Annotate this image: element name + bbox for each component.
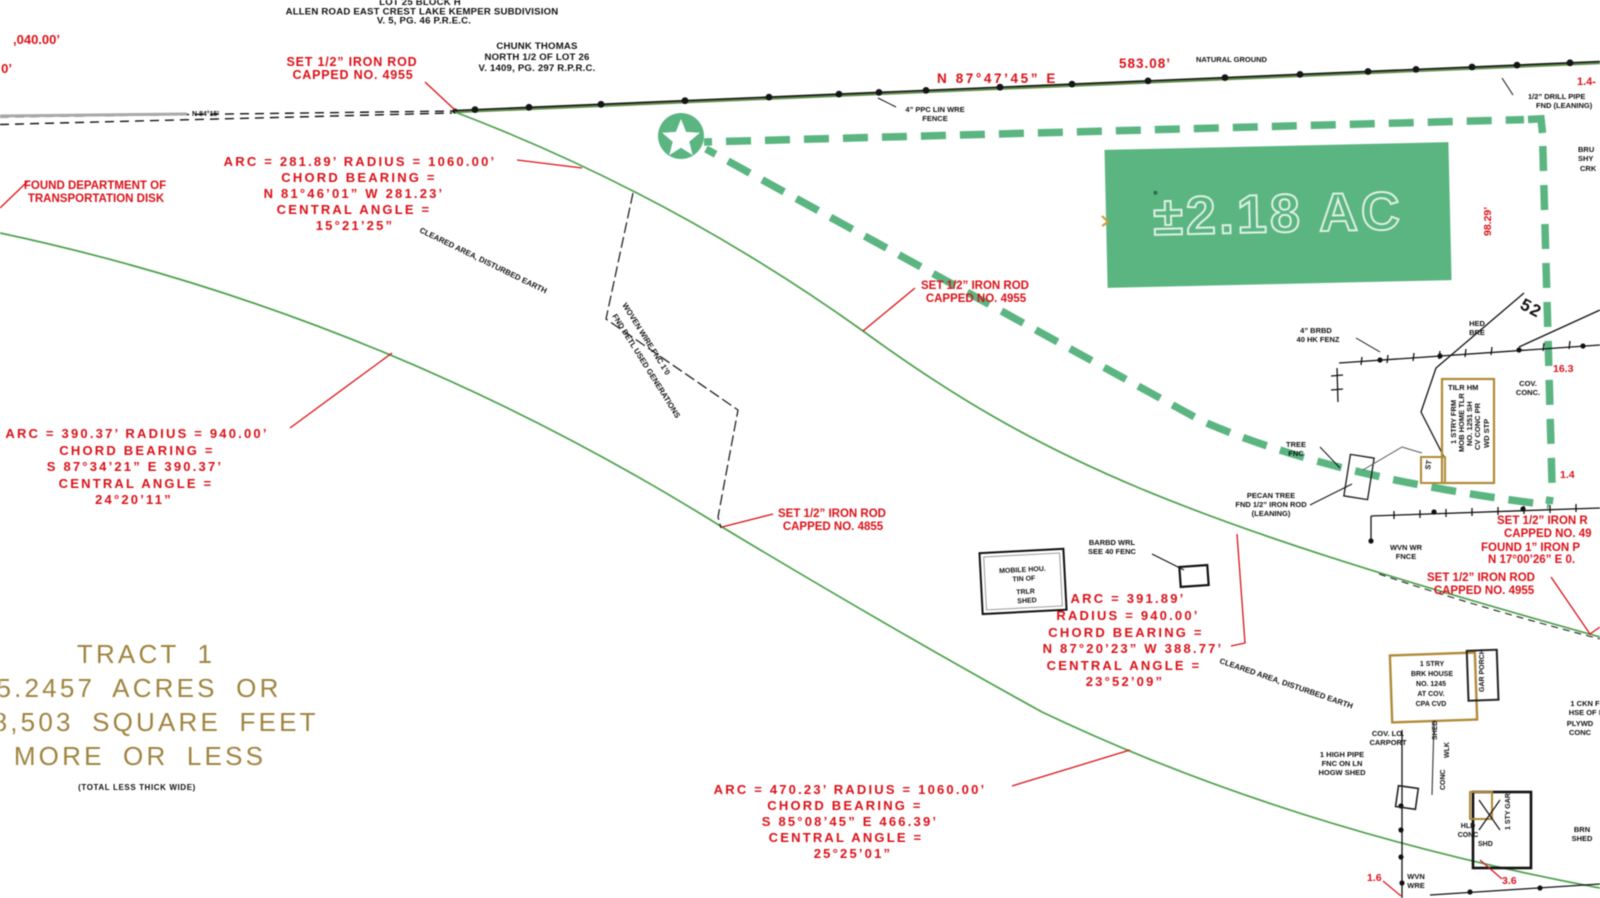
svg-text:CAPPED NO. 4955: CAPPED NO. 4955: [1434, 585, 1535, 597]
svg-text:CARPORT: CARPORT: [1369, 738, 1407, 747]
svg-text:ARC = 391.89’: ARC = 391.89’: [1071, 591, 1186, 606]
svg-text:CHORD BEARING =: CHORD BEARING =: [281, 170, 436, 185]
svg-text:TREE: TREE: [1286, 440, 1306, 449]
svg-text:SEE 40 FENC: SEE 40 FENC: [1088, 547, 1137, 556]
svg-text:TILR HM: TILR HM: [1448, 383, 1478, 392]
svg-text:FND 1/2” IRON ROD: FND 1/2” IRON ROD: [1235, 500, 1307, 509]
svg-text:SHD: SHD: [1478, 841, 1493, 848]
svg-text:FOUND DEPARTMENT OF: FOUND DEPARTMENT OF: [24, 180, 166, 192]
svg-text:S 85°08’45” E 466.39’: S 85°08’45” E 466.39’: [762, 814, 938, 829]
svg-text:HSE OF L: HSE OF L: [1569, 708, 1600, 717]
svg-text:CENTRAL ANGLE =: CENTRAL ANGLE =: [1047, 658, 1202, 673]
svg-text:SET 1/2” IRON ROD: SET 1/2” IRON ROD: [287, 55, 418, 69]
svg-text:1 STRY: 1 STRY: [1420, 661, 1445, 668]
svg-text:WRE: WRE: [1407, 881, 1425, 890]
svg-text:FOUND 1” IRON P: FOUND 1” IRON P: [1481, 542, 1580, 554]
svg-text:(TOTAL LESS THICK WIDE): (TOTAL LESS THICK WIDE): [78, 783, 196, 792]
svg-text:CHORD BEARING =: CHORD BEARING =: [59, 443, 214, 458]
svg-text:16.3: 16.3: [1553, 363, 1574, 375]
svg-text:5.2457 ACRES OR: 5.2457 ACRES OR: [0, 673, 282, 703]
svg-text:4” PPC LIN WRE: 4” PPC LIN WRE: [905, 105, 964, 114]
svg-text:,040.00’: ,040.00’: [13, 32, 60, 47]
svg-text:CV CONC PR: CV CONC PR: [1473, 402, 1482, 450]
svg-text:BARBD WRL: BARBD WRL: [1089, 538, 1136, 547]
svg-text:CAPPED NO. 4855: CAPPED NO. 4855: [783, 521, 884, 533]
svg-text:FNCE: FNCE: [1396, 552, 1416, 561]
svg-text:S 87°34’21” E 390.37’: S 87°34’21” E 390.37’: [47, 459, 223, 474]
svg-text:NORTH 1/2 OF LOT 26: NORTH 1/2 OF LOT 26: [484, 52, 589, 63]
svg-text:25°25’01”: 25°25’01”: [814, 846, 893, 861]
svg-text:40 HK FENZ: 40 HK FENZ: [1297, 335, 1340, 344]
svg-text:CENTRAL ANGLE =: CENTRAL ANGLE =: [59, 476, 214, 491]
svg-text:FND (LEANING): FND (LEANING): [1536, 101, 1593, 110]
svg-text:24°20’11”: 24°20’11”: [95, 492, 173, 507]
svg-text:NO. 1245: NO. 1245: [1416, 681, 1446, 688]
svg-text:23°52’09”: 23°52’09”: [1086, 674, 1165, 689]
svg-text:N 84°15': N 84°15': [192, 110, 219, 118]
svg-text:(LEANING): (LEANING): [1252, 509, 1291, 518]
svg-text:TRACT 1: TRACT 1: [77, 639, 215, 669]
svg-text:V. 5, PG. 46 P.R.E.C.: V. 5, PG. 46 P.R.E.C.: [377, 16, 471, 27]
svg-text:ARC = 470.23’ RADIUS = 10: ARC = 470.23’ RADIUS = 1060.00’: [714, 782, 987, 797]
svg-text:COV.: COV.: [1519, 379, 1537, 388]
svg-text:RADIUS = 940.00’: RADIUS = 940.00’: [1056, 608, 1199, 623]
svg-text:N 81°46’01” W 281.23’: N 81°46’01” W 281.23’: [264, 186, 445, 201]
svg-text:WVN WR: WVN WR: [1390, 543, 1423, 552]
svg-text:FENCE: FENCE: [922, 114, 947, 123]
svg-text:CENTRAL ANGLE =: CENTRAL ANGLE =: [277, 202, 432, 217]
svg-text:ARC = 390.37’ RADIUS = 94: ARC = 390.37’ RADIUS = 940.00’: [5, 426, 268, 441]
svg-text:SHED: SHED: [1017, 597, 1037, 605]
svg-text:CONC: CONC: [1569, 728, 1592, 737]
svg-text:CONC.: CONC.: [1516, 388, 1540, 397]
svg-text:AT COV.: AT COV.: [1417, 691, 1444, 698]
svg-text:1.6: 1.6: [1367, 872, 1382, 884]
svg-text:N 87°47’45” E: N 87°47’45” E: [937, 71, 1058, 86]
svg-text:ARC = 281.89’ RADIUS = 10: ARC = 281.89’ RADIUS = 1060.00’: [224, 154, 497, 169]
svg-text:228,503 SQUARE FEET: 228,503 SQUARE FEET: [0, 707, 319, 737]
svg-text:1 STY GAR: 1 STY GAR: [1505, 793, 1512, 830]
svg-text:GAR PORCH: GAR PORCH: [1479, 649, 1486, 692]
svg-text:WLK: WLK: [1444, 742, 1451, 758]
svg-text:N 17°00’26” E 0.: N 17°00’26” E 0.: [1488, 554, 1575, 566]
svg-text:CAPPED NO. 49: CAPPED NO. 49: [1504, 528, 1592, 540]
svg-text:HLD: HLD: [1461, 823, 1475, 830]
svg-text:FNC: FNC: [1288, 449, 1304, 458]
svg-text:COV. LO.: COV. LO.: [1372, 729, 1404, 738]
svg-text:1 HIGH PIPE: 1 HIGH PIPE: [1320, 750, 1364, 759]
svg-text:CONC: CONC: [1458, 832, 1479, 839]
svg-text:CPA CVD: CPA CVD: [1416, 701, 1447, 708]
svg-text:1.4-: 1.4-: [1577, 76, 1596, 88]
svg-text:PLYWD: PLYWD: [1567, 719, 1594, 728]
svg-text:TIN OF: TIN OF: [1012, 575, 1036, 583]
svg-text:3.6: 3.6: [1502, 875, 1517, 887]
svg-text:SET 1/2” IRON ROD: SET 1/2” IRON ROD: [921, 280, 1029, 292]
svg-text:CHUNK THOMAS: CHUNK THOMAS: [496, 41, 578, 52]
svg-text:CRK: CRK: [1580, 164, 1597, 173]
svg-text:BRN: BRN: [1574, 825, 1590, 834]
svg-text:98.29’: 98.29’: [1482, 207, 1494, 236]
svg-text:WD STP: WD STP: [1482, 419, 1491, 448]
svg-text:CAPPED NO. 4955: CAPPED NO. 4955: [292, 68, 413, 82]
svg-text:FNC ON LN: FNC ON LN: [1322, 759, 1363, 768]
svg-text:CHORD BEARING =: CHORD BEARING =: [767, 798, 922, 813]
svg-text:583.08’: 583.08’: [1119, 56, 1171, 71]
svg-text:BRK HOUSE: BRK HOUSE: [1411, 671, 1453, 678]
svg-text:1.4: 1.4: [1560, 469, 1575, 481]
svg-text:SET 1/2” IRON R: SET 1/2” IRON R: [1497, 515, 1588, 527]
svg-text:SET 1/2” IRON ROD: SET 1/2” IRON ROD: [778, 508, 886, 520]
svg-text:NATURAL GROUND: NATURAL GROUND: [1196, 55, 1268, 64]
svg-text:15°21’25”: 15°21’25”: [316, 218, 395, 233]
svg-text:CAPPED NO. 4955: CAPPED NO. 4955: [926, 293, 1027, 305]
svg-text:0’: 0’: [1, 61, 12, 76]
svg-text:CONC: CONC: [1440, 769, 1447, 790]
svg-text:TRANSPORTATION DISK: TRANSPORTATION DISK: [28, 193, 165, 205]
svg-text:HED: HED: [1469, 319, 1485, 328]
svg-text:WVN: WVN: [1407, 872, 1425, 881]
svg-text:1/2” DRILL PIPE: 1/2” DRILL PIPE: [1528, 92, 1585, 101]
svg-text:TRLR: TRLR: [1016, 588, 1035, 596]
svg-text:CHORD BEARING =: CHORD BEARING =: [1048, 625, 1203, 640]
svg-text:1 CKN F: 1 CKN F: [1570, 699, 1600, 708]
svg-text:SHED: SHED: [1572, 834, 1593, 843]
svg-text:V. 1409, PG. 297 R.P.R.C.: V. 1409, PG. 297 R.P.R.C.: [479, 63, 596, 74]
svg-text:ST: ST: [1423, 459, 1434, 470]
svg-text:BRU: BRU: [1578, 145, 1594, 154]
svg-text:±2.18 AC: ±2.18 AC: [1152, 181, 1403, 247]
svg-text:4” BRBD: 4” BRBD: [1300, 326, 1332, 335]
svg-text:MORE OR LESS: MORE OR LESS: [14, 741, 266, 771]
svg-text:N 87°20’23” W 388.77’: N 87°20’23” W 388.77’: [1043, 641, 1224, 656]
svg-text:SET 1/2” IRON ROD: SET 1/2” IRON ROD: [1427, 572, 1535, 584]
svg-text:CENTRAL ANGLE =: CENTRAL ANGLE =: [769, 830, 924, 845]
svg-text:SHY: SHY: [1578, 154, 1593, 163]
svg-text:HOGW SHED: HOGW SHED: [1318, 768, 1366, 777]
svg-text:BRE: BRE: [1469, 328, 1485, 337]
svg-text:PECAN TREE: PECAN TREE: [1247, 491, 1295, 500]
